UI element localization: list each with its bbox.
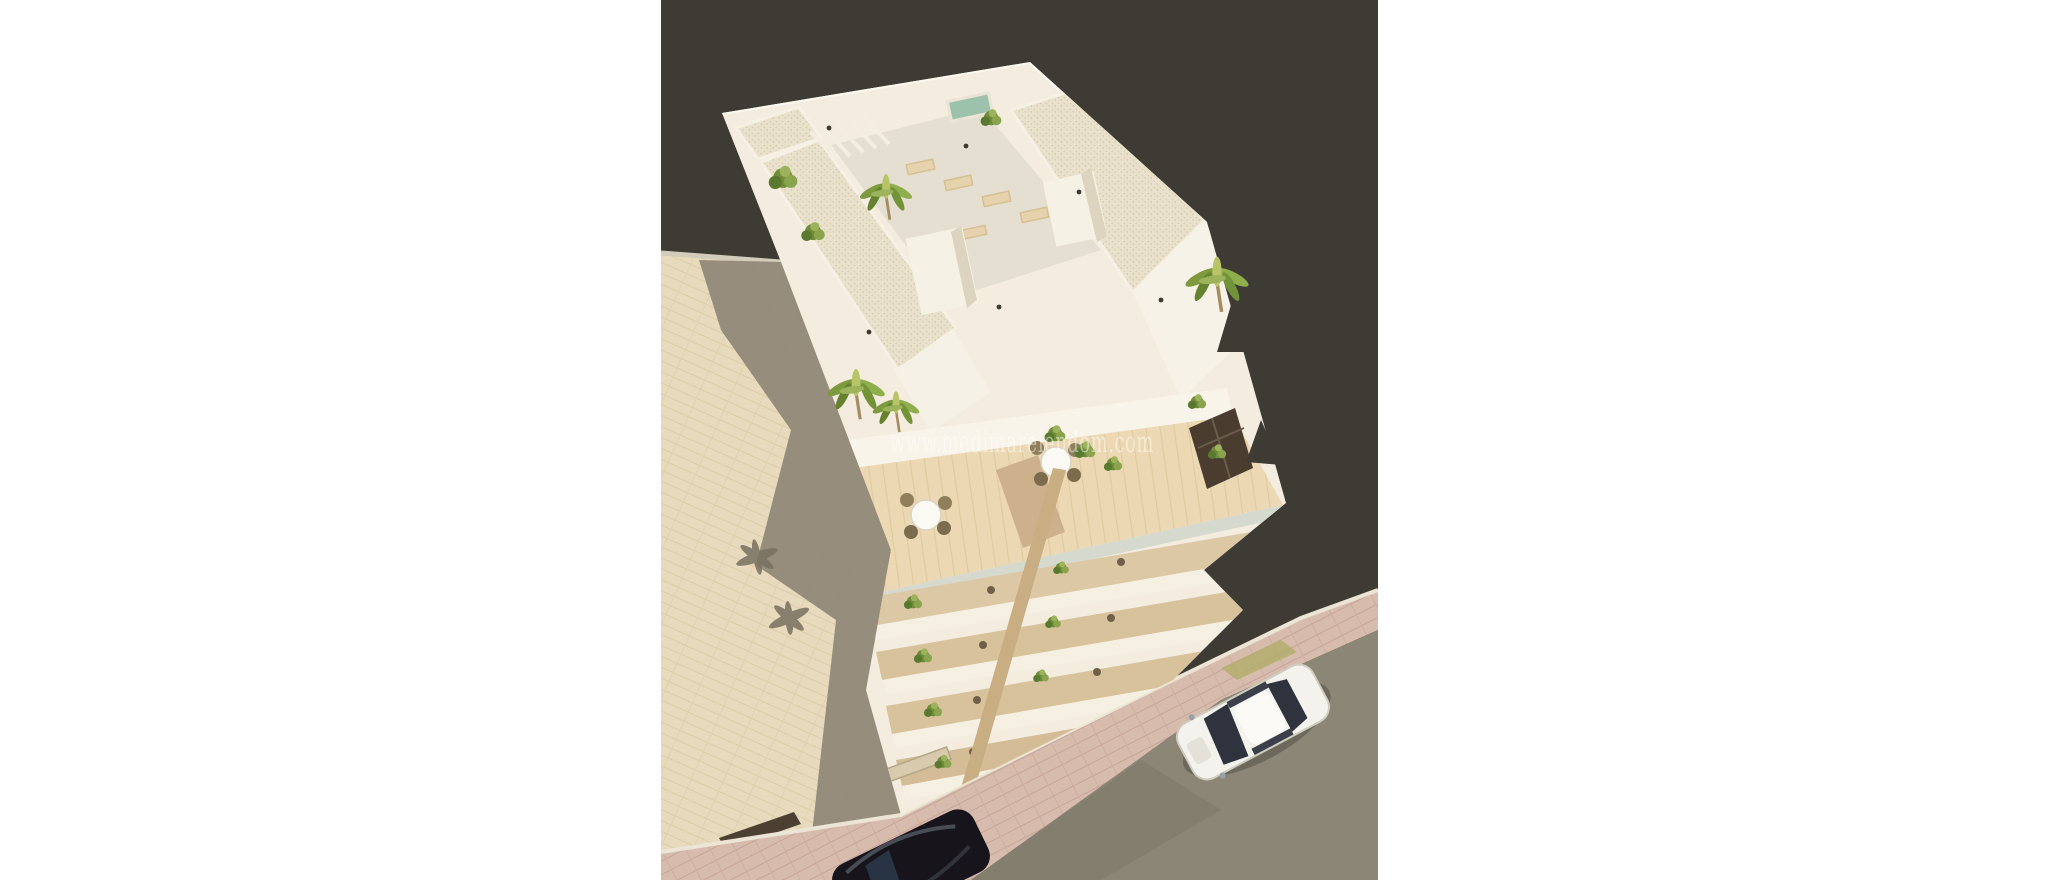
render-photo: www.medimareiendom.com	[661, 0, 1378, 880]
watermark-text: www.medimareiendom.com	[890, 425, 1154, 459]
page-background: www.medimareiendom.com	[0, 0, 2048, 880]
